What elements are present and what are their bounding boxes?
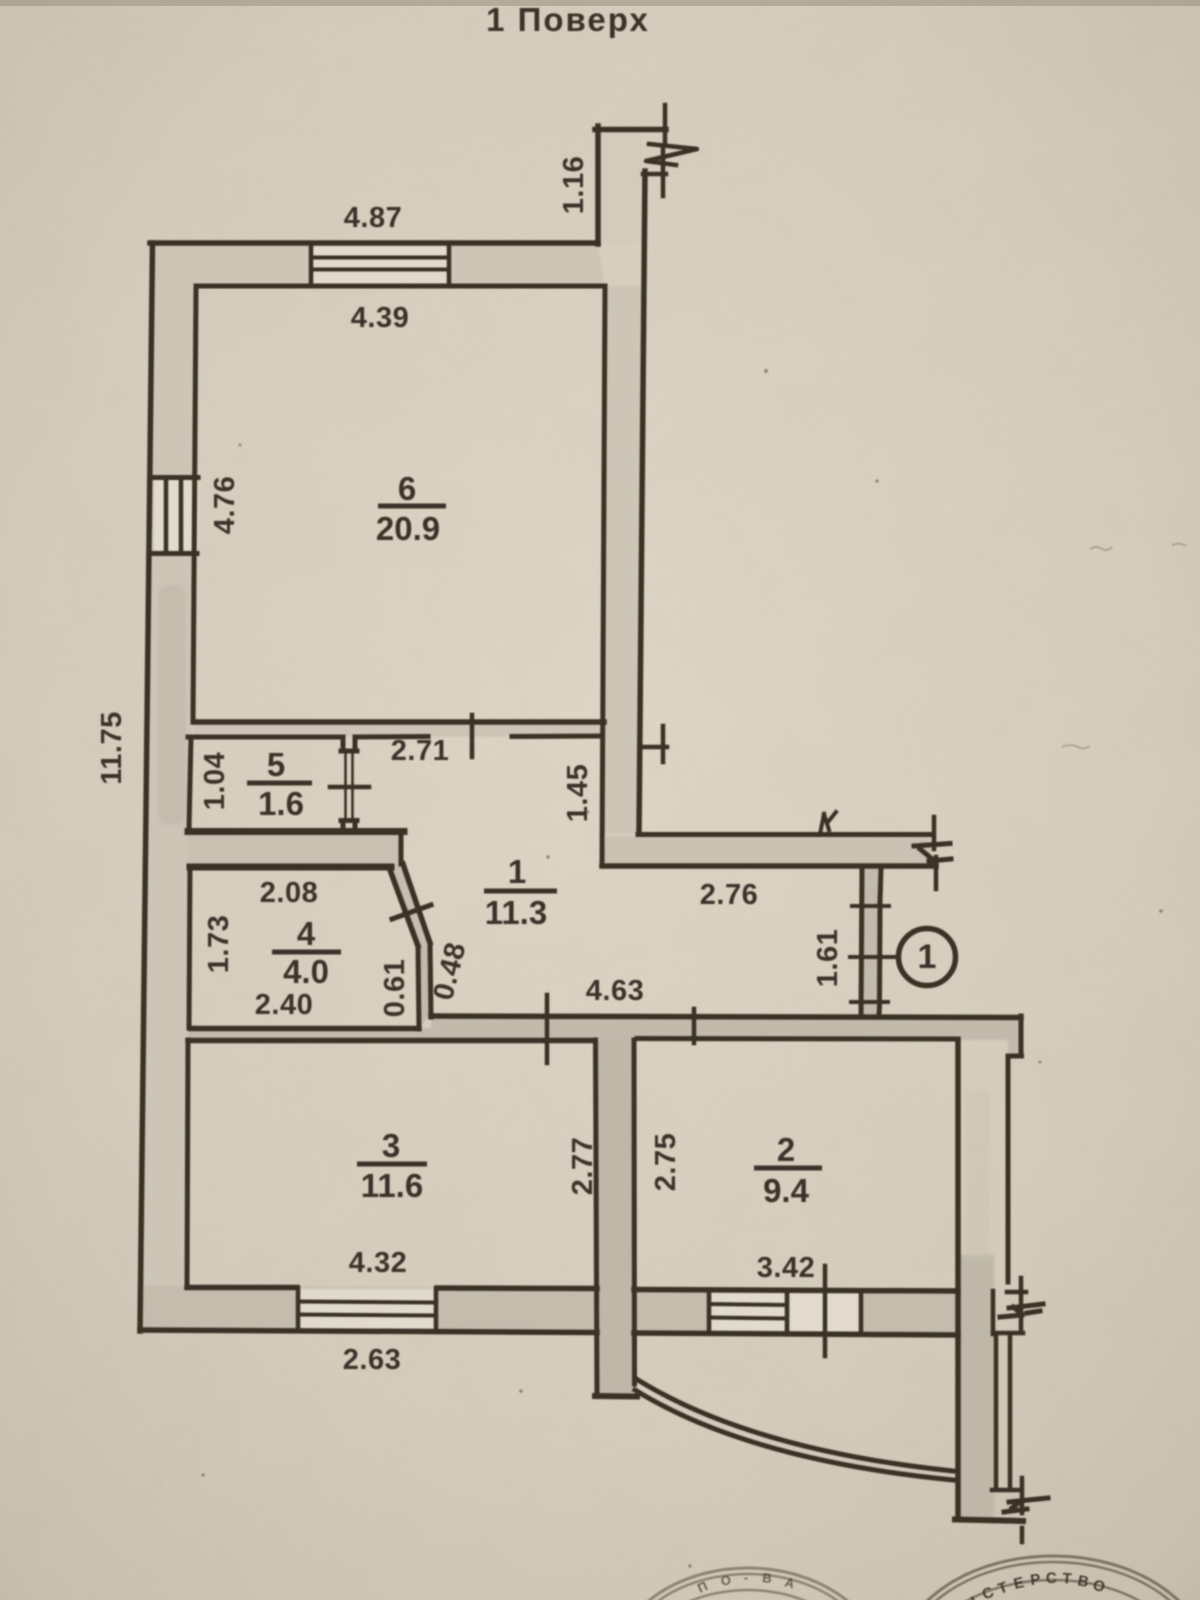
svg-text:1.61: 1.61 [812,929,844,987]
svg-text:1: 1 [508,853,526,890]
svg-text:4.87: 4.87 [344,202,402,234]
svg-text:2.40: 2.40 [255,989,313,1021]
svg-text:1.04: 1.04 [199,752,231,810]
svg-text:2.76: 2.76 [700,879,758,911]
svg-text:5: 5 [267,746,285,783]
svg-text:11.75: 11.75 [96,711,128,784]
svg-text:2.71: 2.71 [391,735,449,767]
svg-text:1.16: 1.16 [558,156,590,214]
svg-text:2.77: 2.77 [567,1137,599,1195]
svg-text:1.73: 1.73 [203,915,235,973]
svg-text:4.63: 4.63 [586,975,644,1007]
svg-text:4.39: 4.39 [351,302,409,334]
svg-text:В: В [762,1570,773,1586]
svg-text:3: 3 [382,1127,400,1164]
svg-text:2.08: 2.08 [260,877,318,909]
svg-text:Т: Т [1062,1570,1073,1588]
svg-text:4.32: 4.32 [349,1247,407,1279]
svg-text:9.4: 9.4 [763,1172,810,1209]
svg-text:2: 2 [777,1131,795,1168]
svg-text:2.63: 2.63 [343,1344,401,1376]
svg-text:2.75: 2.75 [650,1133,682,1191]
svg-text:11.3: 11.3 [485,894,547,931]
svg-text:3.42: 3.42 [757,1252,815,1284]
svg-text:1: 1 [918,938,937,976]
svg-text:6: 6 [398,470,416,507]
svg-text:4.76: 4.76 [209,476,241,534]
svg-text:1.6: 1.6 [258,785,304,822]
svg-text:11.6: 11.6 [361,1167,423,1204]
svg-text:0.61: 0.61 [379,959,411,1017]
svg-text:4.0: 4.0 [283,953,329,990]
svg-text:Р: Р [1029,1571,1041,1589]
svg-text:4: 4 [297,915,316,952]
svg-text:20.9: 20.9 [376,510,440,547]
svg-text:1 Поверх: 1 Поверх [486,1,650,38]
svg-text:С: С [1046,1570,1057,1587]
svg-text:1.45: 1.45 [562,764,594,822]
